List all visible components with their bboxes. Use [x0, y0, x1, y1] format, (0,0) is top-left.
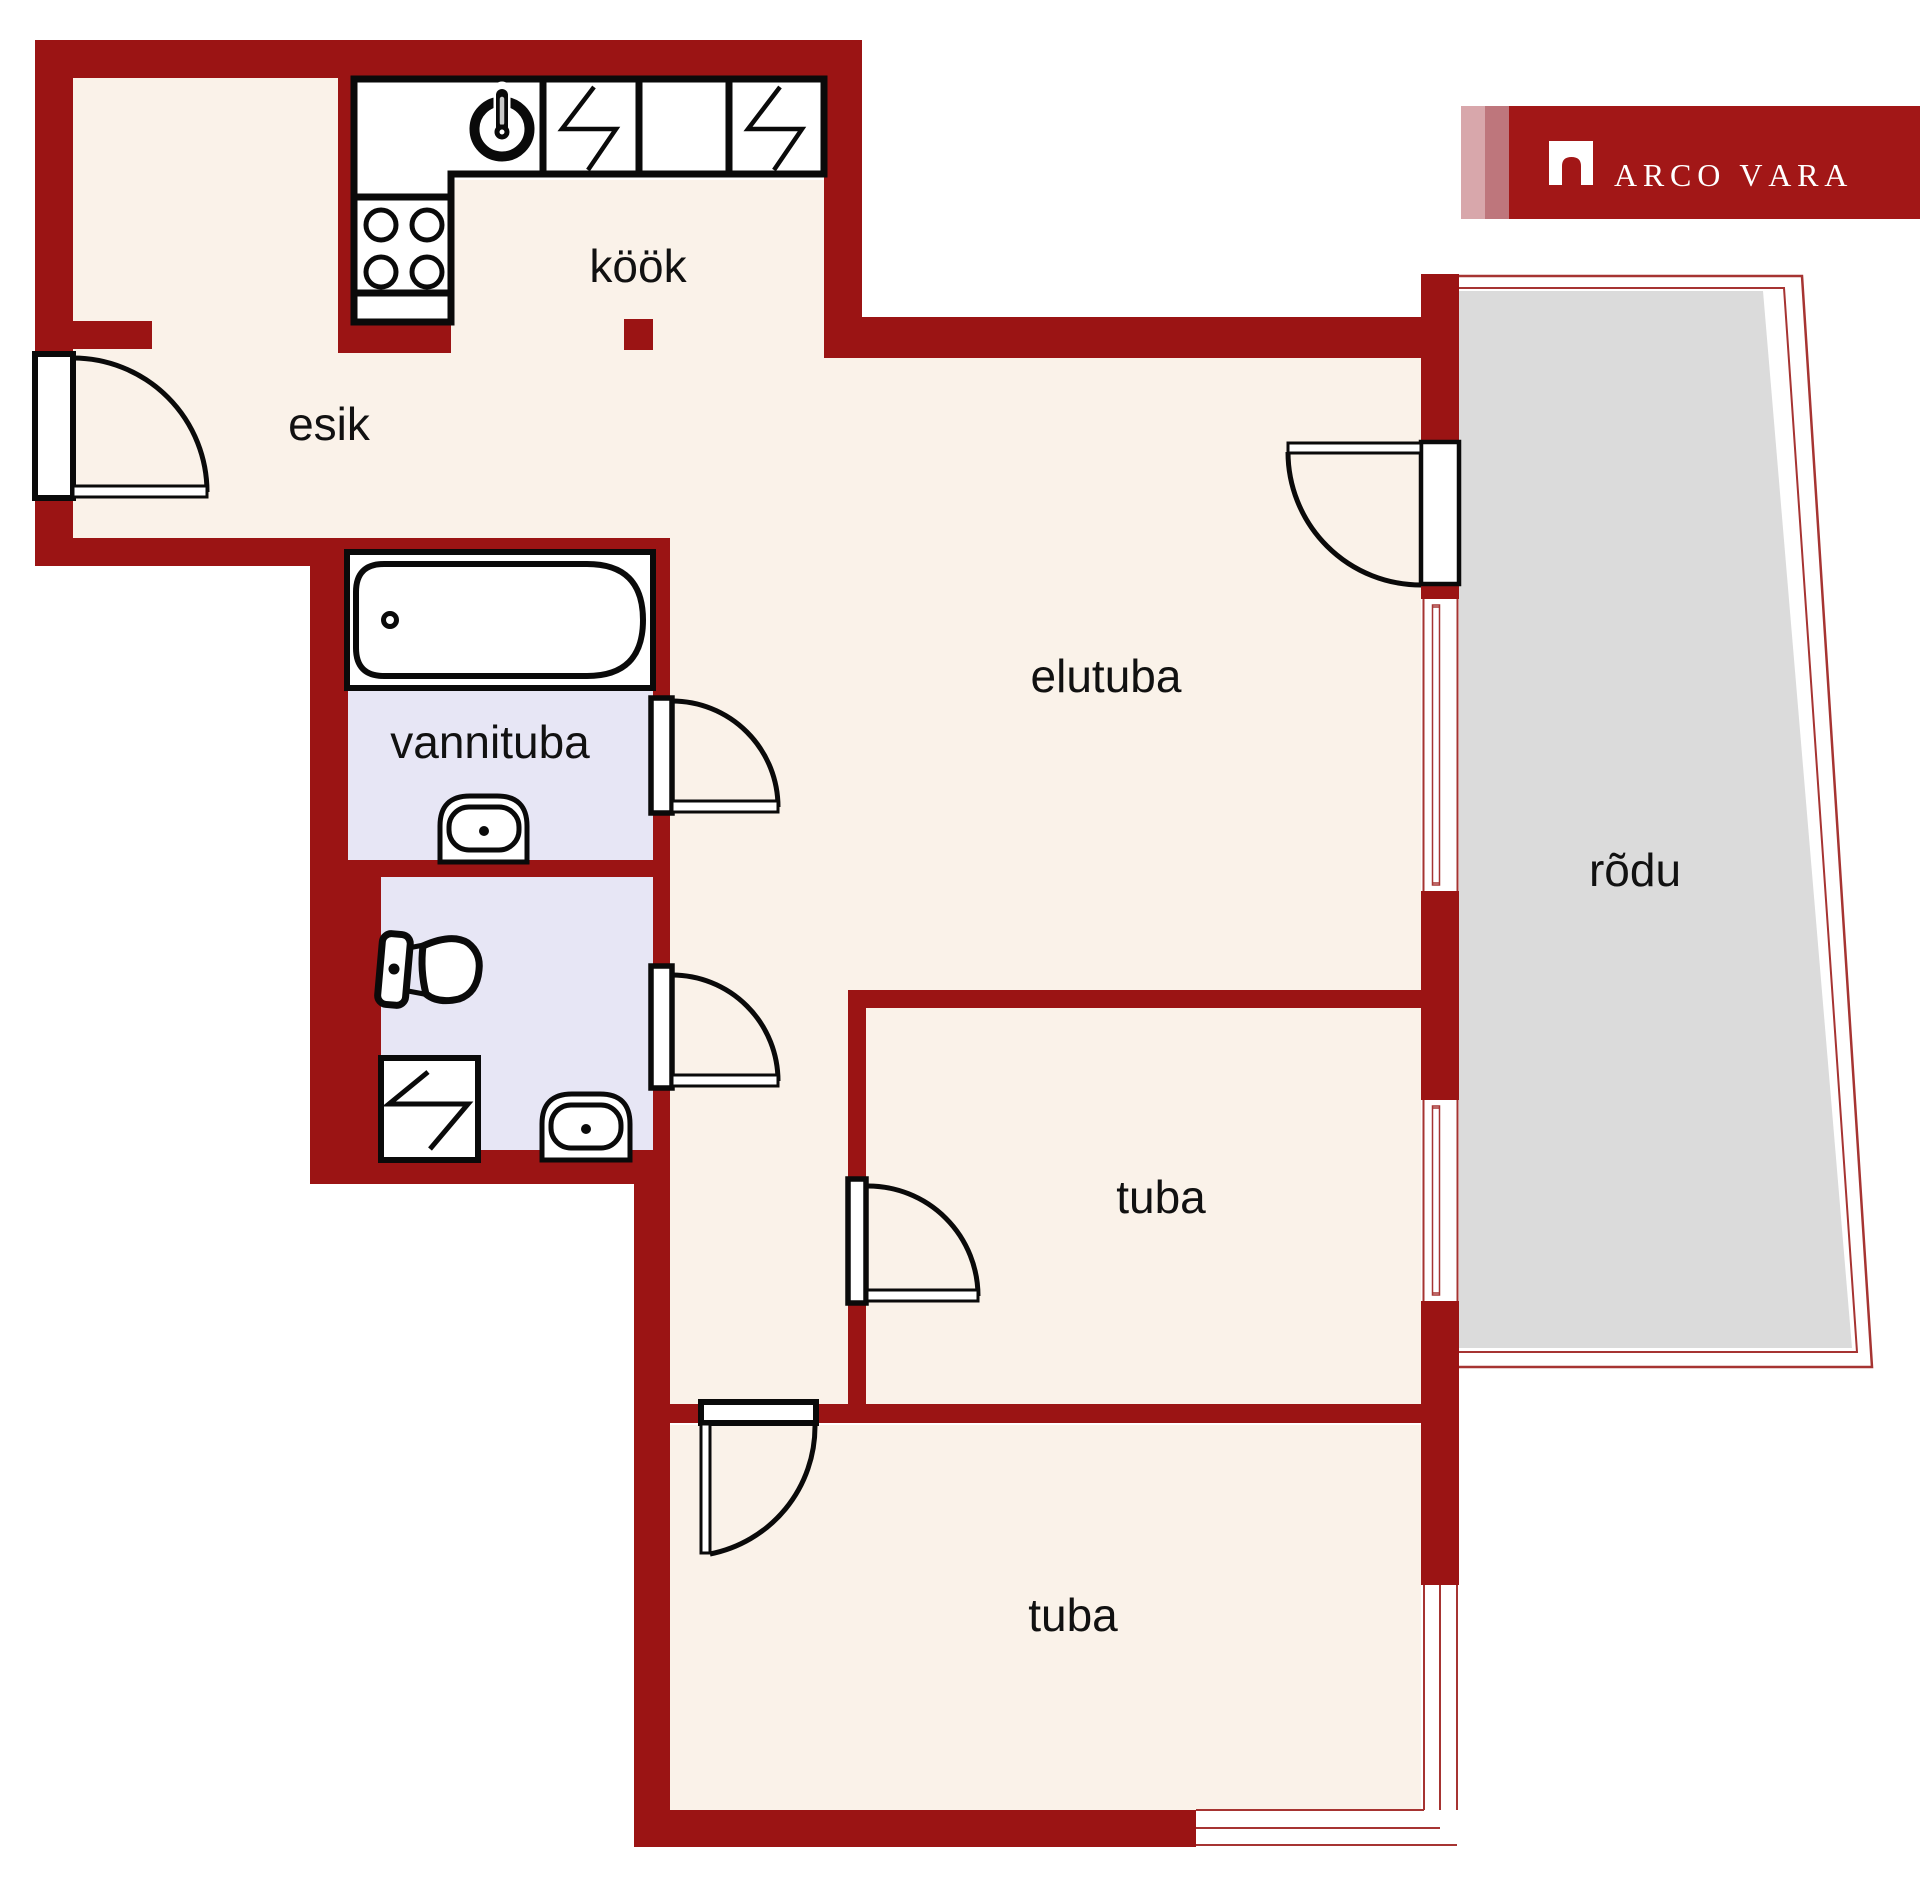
svg-text:tuba: tuba [1116, 1171, 1206, 1223]
svg-text:tuba: tuba [1028, 1589, 1118, 1641]
svg-text:esik: esik [288, 398, 371, 450]
svg-text:ΑRCO VΑRΑ: ΑRCO VΑRΑ [1614, 157, 1853, 193]
svg-text:köök: köök [589, 240, 687, 292]
svg-text:elutuba: elutuba [1031, 650, 1182, 702]
svg-text:vannituba: vannituba [390, 716, 590, 768]
svg-text:rõdu: rõdu [1589, 844, 1681, 896]
